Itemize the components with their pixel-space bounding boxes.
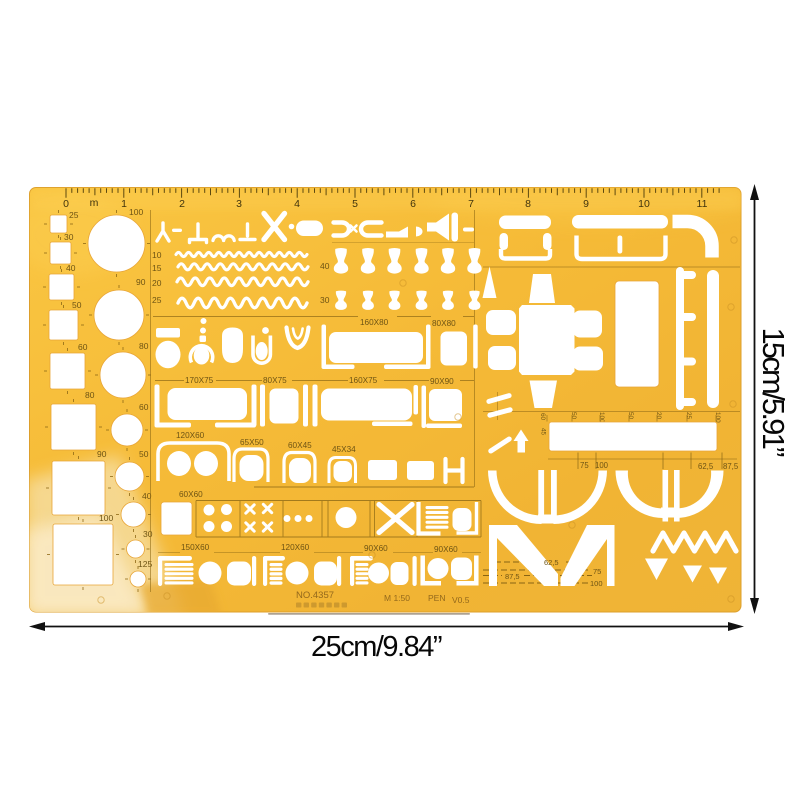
svg-text:25: 25: [152, 295, 162, 305]
svg-text:30: 30: [143, 529, 153, 539]
svg-text:60X45: 60X45: [288, 441, 312, 450]
svg-text:80X80: 80X80: [432, 319, 456, 328]
svg-text:160X80: 160X80: [360, 318, 389, 327]
svg-text:87,5: 87,5: [723, 462, 739, 471]
svg-text:30: 30: [320, 295, 330, 305]
svg-text:80: 80: [85, 390, 95, 400]
svg-text:15cm/5.91”: 15cm/5.91”: [756, 327, 791, 457]
svg-text:10: 10: [152, 250, 162, 260]
svg-text:170X75: 170X75: [185, 376, 214, 385]
svg-text:100: 100: [598, 412, 605, 423]
svg-text:75: 75: [593, 567, 601, 576]
svg-text:100: 100: [714, 412, 721, 423]
svg-text:87,5: 87,5: [505, 572, 520, 581]
svg-text:90X60: 90X60: [364, 544, 388, 553]
svg-text:6: 6: [410, 198, 416, 210]
svg-text:50: 50: [72, 300, 82, 310]
svg-text:45X34: 45X34: [332, 445, 356, 454]
svg-text:NO.4357: NO.4357: [296, 590, 334, 601]
svg-text:120X60: 120X60: [176, 431, 205, 440]
svg-text:90X60: 90X60: [434, 545, 458, 554]
svg-text:9: 9: [583, 198, 589, 210]
svg-text:V0.5: V0.5: [452, 595, 470, 605]
svg-text:m: m: [90, 197, 99, 209]
svg-text:75: 75: [580, 461, 589, 470]
svg-text:50: 50: [570, 412, 577, 420]
svg-text:62,5: 62,5: [544, 558, 559, 567]
svg-text:7: 7: [468, 198, 474, 210]
svg-text:25cm/9.84”: 25cm/9.84”: [311, 631, 442, 663]
svg-text:3: 3: [236, 198, 242, 210]
svg-text:90: 90: [136, 277, 146, 287]
svg-text:100: 100: [129, 207, 143, 217]
svg-text:100: 100: [99, 513, 113, 523]
svg-text:11: 11: [697, 198, 708, 210]
svg-text:40: 40: [66, 263, 76, 273]
svg-text:90X90: 90X90: [430, 377, 454, 386]
svg-text:50: 50: [139, 449, 149, 459]
svg-text:30: 30: [64, 232, 74, 242]
svg-text:100: 100: [595, 461, 609, 470]
svg-text:4: 4: [294, 198, 300, 210]
svg-text:2: 2: [179, 198, 185, 210]
svg-text:15: 15: [152, 263, 162, 273]
svg-text:80: 80: [139, 341, 149, 351]
svg-text:90: 90: [97, 449, 107, 459]
svg-text:50: 50: [627, 412, 634, 420]
svg-text:0: 0: [63, 198, 69, 210]
svg-text:100: 100: [590, 579, 603, 588]
svg-text:1: 1: [121, 198, 127, 210]
svg-text:PEN: PEN: [428, 593, 445, 603]
svg-text:150X60: 150X60: [181, 543, 210, 552]
svg-text:25: 25: [685, 412, 692, 420]
svg-text:120X60: 120X60: [281, 543, 310, 552]
svg-text:20: 20: [152, 278, 162, 288]
svg-text:25: 25: [69, 210, 79, 220]
svg-text:60: 60: [139, 402, 149, 412]
svg-text:160X75: 160X75: [349, 376, 378, 385]
svg-text:8: 8: [525, 198, 531, 210]
svg-text:5: 5: [352, 198, 358, 210]
svg-text:60: 60: [539, 413, 546, 421]
svg-text:10: 10: [638, 198, 650, 210]
svg-text:40: 40: [320, 261, 330, 271]
svg-text:M 1:50: M 1:50: [384, 593, 410, 603]
svg-text:65X50: 65X50: [240, 438, 264, 447]
svg-text:45: 45: [540, 428, 547, 436]
svg-text:62,5: 62,5: [698, 462, 714, 471]
svg-text:20: 20: [655, 412, 662, 420]
svg-text:80X75: 80X75: [263, 376, 287, 385]
svg-text:60: 60: [78, 342, 88, 352]
svg-text:60X60: 60X60: [179, 490, 203, 499]
